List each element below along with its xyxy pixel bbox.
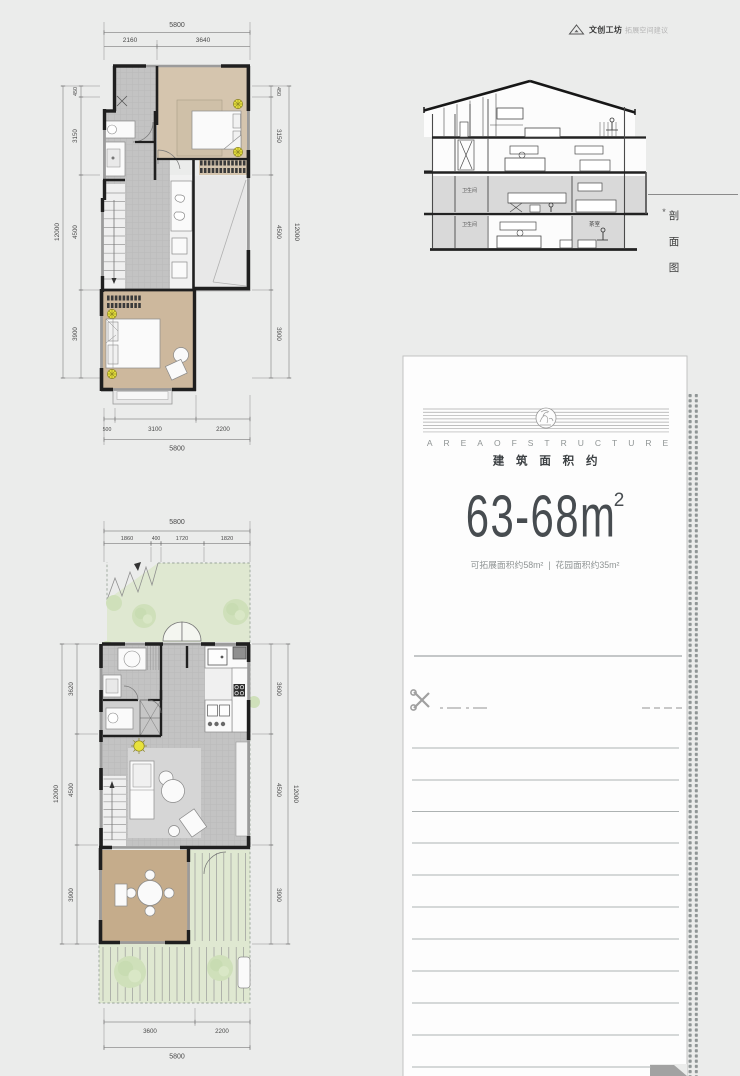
svg-text:3100: 3100: [148, 426, 162, 433]
svg-text:400: 400: [152, 536, 161, 542]
svg-text:3640: 3640: [196, 37, 211, 44]
svg-text:卫生间: 卫生间: [462, 187, 477, 194]
svg-text:3900: 3900: [275, 888, 282, 902]
svg-text:文创工坊: 文创工坊: [589, 25, 622, 35]
svg-text:3900: 3900: [72, 327, 79, 341]
svg-text:2200: 2200: [215, 1028, 229, 1035]
svg-text:3150: 3150: [72, 129, 79, 143]
svg-text:5800: 5800: [169, 519, 185, 526]
svg-text:可拓展面积约58m² | 花园面积约35m²: 可拓展面积约58m² | 花园面积约35m²: [471, 559, 620, 570]
svg-text:12000: 12000: [292, 785, 299, 803]
svg-text:4500: 4500: [275, 225, 282, 239]
svg-text:建筑面积约: 建筑面积约: [493, 454, 610, 468]
svg-text:1720: 1720: [176, 536, 188, 542]
svg-text:卫生间: 卫生间: [462, 221, 477, 228]
svg-text:剖: 剖: [669, 209, 680, 222]
svg-text:5800: 5800: [169, 1054, 185, 1061]
svg-text:12000: 12000: [293, 223, 300, 241]
svg-text:5800: 5800: [169, 22, 185, 29]
svg-text:1820: 1820: [221, 536, 233, 542]
svg-text:1860: 1860: [121, 536, 133, 542]
svg-text:4500: 4500: [68, 783, 75, 797]
svg-text:茶室: 茶室: [589, 220, 601, 228]
svg-text:12000: 12000: [54, 223, 61, 241]
svg-text:面: 面: [669, 236, 680, 248]
svg-text:3150: 3150: [275, 129, 282, 143]
svg-text:拓展空间建议: 拓展空间建议: [625, 26, 668, 35]
svg-text:2: 2: [614, 490, 625, 511]
svg-text:63-68m: 63-68m: [466, 483, 617, 549]
svg-text:450: 450: [73, 87, 79, 96]
svg-text:3600: 3600: [143, 1028, 157, 1035]
svg-text:12000: 12000: [53, 785, 60, 803]
svg-text:4500: 4500: [275, 783, 282, 797]
svg-text:5800: 5800: [169, 446, 185, 453]
svg-text:图: 图: [669, 262, 680, 274]
svg-text:*: *: [662, 207, 666, 217]
svg-text:2200: 2200: [216, 426, 230, 433]
svg-text:4500: 4500: [72, 225, 79, 239]
svg-text:AREAOFSTRUCTURE: AREAOFSTRUCTURE: [427, 438, 679, 448]
svg-text:3620: 3620: [68, 682, 75, 696]
svg-text:3900: 3900: [68, 888, 75, 902]
svg-text:3600: 3600: [275, 682, 282, 696]
svg-text:450: 450: [275, 87, 281, 96]
svg-text:2160: 2160: [123, 37, 138, 44]
svg-text:3900: 3900: [275, 327, 282, 341]
